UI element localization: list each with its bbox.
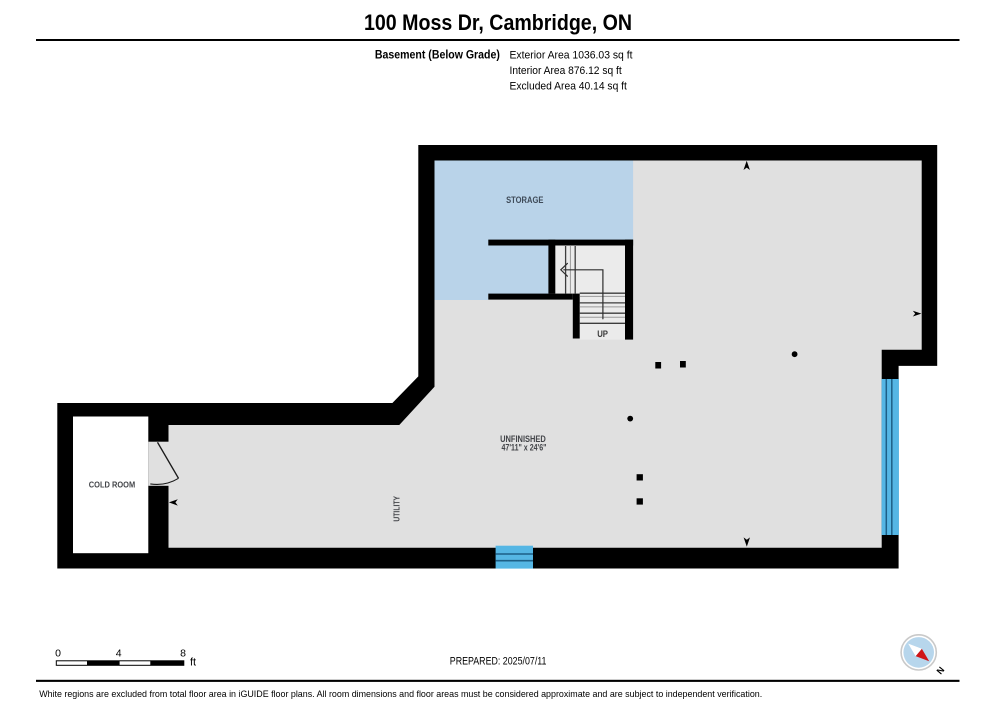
svg-text:White regions are excluded fro: White regions are excluded from total fl…	[39, 689, 762, 699]
svg-text:UTILITY: UTILITY	[392, 495, 401, 521]
svg-text:UP: UP	[597, 329, 608, 339]
svg-text:COLD ROOM: COLD ROOM	[89, 480, 135, 490]
svg-text:47'11" x 24'6": 47'11" x 24'6"	[502, 442, 547, 452]
svg-text:8: 8	[180, 648, 186, 660]
svg-text:Exterior Area 1036.03 sq ft: Exterior Area 1036.03 sq ft	[510, 49, 634, 61]
svg-text:4: 4	[116, 648, 122, 660]
svg-text:STORAGE: STORAGE	[506, 195, 543, 205]
svg-text:Excluded Area 40.14 sq ft: Excluded Area 40.14 sq ft	[510, 81, 628, 93]
svg-text:PREPARED: 2025/07/11: PREPARED: 2025/07/11	[450, 655, 547, 667]
svg-text:ft: ft	[190, 656, 196, 668]
svg-text:Basement (Below Grade): Basement (Below Grade)	[375, 47, 500, 61]
svg-text:0: 0	[55, 648, 61, 660]
svg-text:Interior Area 876.12 sq ft: Interior Area 876.12 sq ft	[510, 65, 623, 77]
svg-text:100 Moss Dr, Cambridge, ON: 100 Moss Dr, Cambridge, ON	[364, 10, 632, 35]
